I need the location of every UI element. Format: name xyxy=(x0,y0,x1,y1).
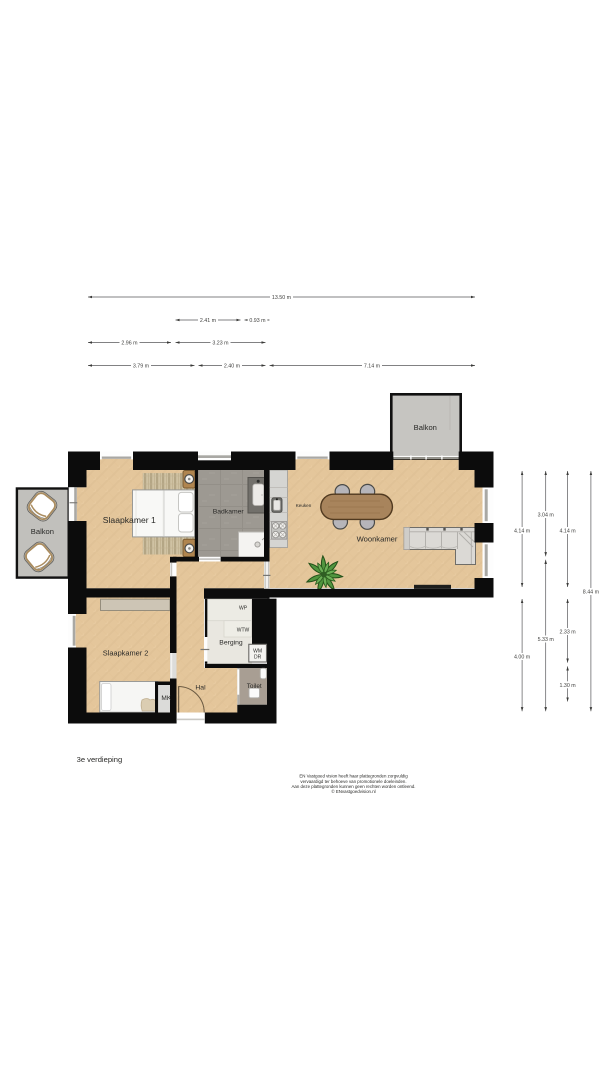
svg-text:4.14 m: 4.14 m xyxy=(514,529,531,535)
svg-text:0.93 m: 0.93 m xyxy=(249,318,266,324)
svg-text:Toilet: Toilet xyxy=(247,683,262,690)
svg-text:Badkamer: Badkamer xyxy=(213,509,245,516)
svg-text:1.30 m: 1.30 m xyxy=(559,683,576,689)
svg-text:2.96 m: 2.96 m xyxy=(121,341,138,347)
svg-text:3.23 m: 3.23 m xyxy=(212,341,229,347)
svg-text:Woonkamer: Woonkamer xyxy=(357,535,398,544)
svg-text:Slaapkamer 1: Slaapkamer 1 xyxy=(103,515,156,525)
svg-text:5.33 m: 5.33 m xyxy=(538,637,555,643)
svg-text:DR: DR xyxy=(254,655,262,661)
svg-text:2.40 m: 2.40 m xyxy=(224,364,241,370)
svg-text:© ENvastgoedvision.nl: © ENvastgoedvision.nl xyxy=(331,789,375,794)
svg-text:Keuken: Keuken xyxy=(296,503,312,508)
svg-text:Hal: Hal xyxy=(195,684,206,691)
svg-text:Balkon: Balkon xyxy=(31,527,54,536)
svg-text:8.44 m: 8.44 m xyxy=(583,590,600,596)
svg-text:Slaapkamer 2: Slaapkamer 2 xyxy=(103,649,149,658)
svg-text:2.41 m: 2.41 m xyxy=(200,318,217,324)
svg-text:3e verdieping: 3e verdieping xyxy=(77,755,123,764)
svg-text:3.04 m: 3.04 m xyxy=(538,513,555,519)
svg-text:WP: WP xyxy=(239,606,248,612)
svg-text:4.00 m: 4.00 m xyxy=(514,655,531,661)
svg-text:4.14 m: 4.14 m xyxy=(559,529,576,535)
svg-text:MK: MK xyxy=(161,695,171,702)
svg-text:7.14 m: 7.14 m xyxy=(364,364,381,370)
svg-text:13.50 m: 13.50 m xyxy=(272,295,292,301)
svg-text:WM: WM xyxy=(253,648,262,654)
svg-text:2.33 m: 2.33 m xyxy=(559,630,576,636)
svg-text:WTW: WTW xyxy=(237,627,250,633)
svg-text:3.79 m: 3.79 m xyxy=(133,364,150,370)
svg-text:Balkon: Balkon xyxy=(414,423,437,432)
svg-text:Berging: Berging xyxy=(219,639,243,646)
